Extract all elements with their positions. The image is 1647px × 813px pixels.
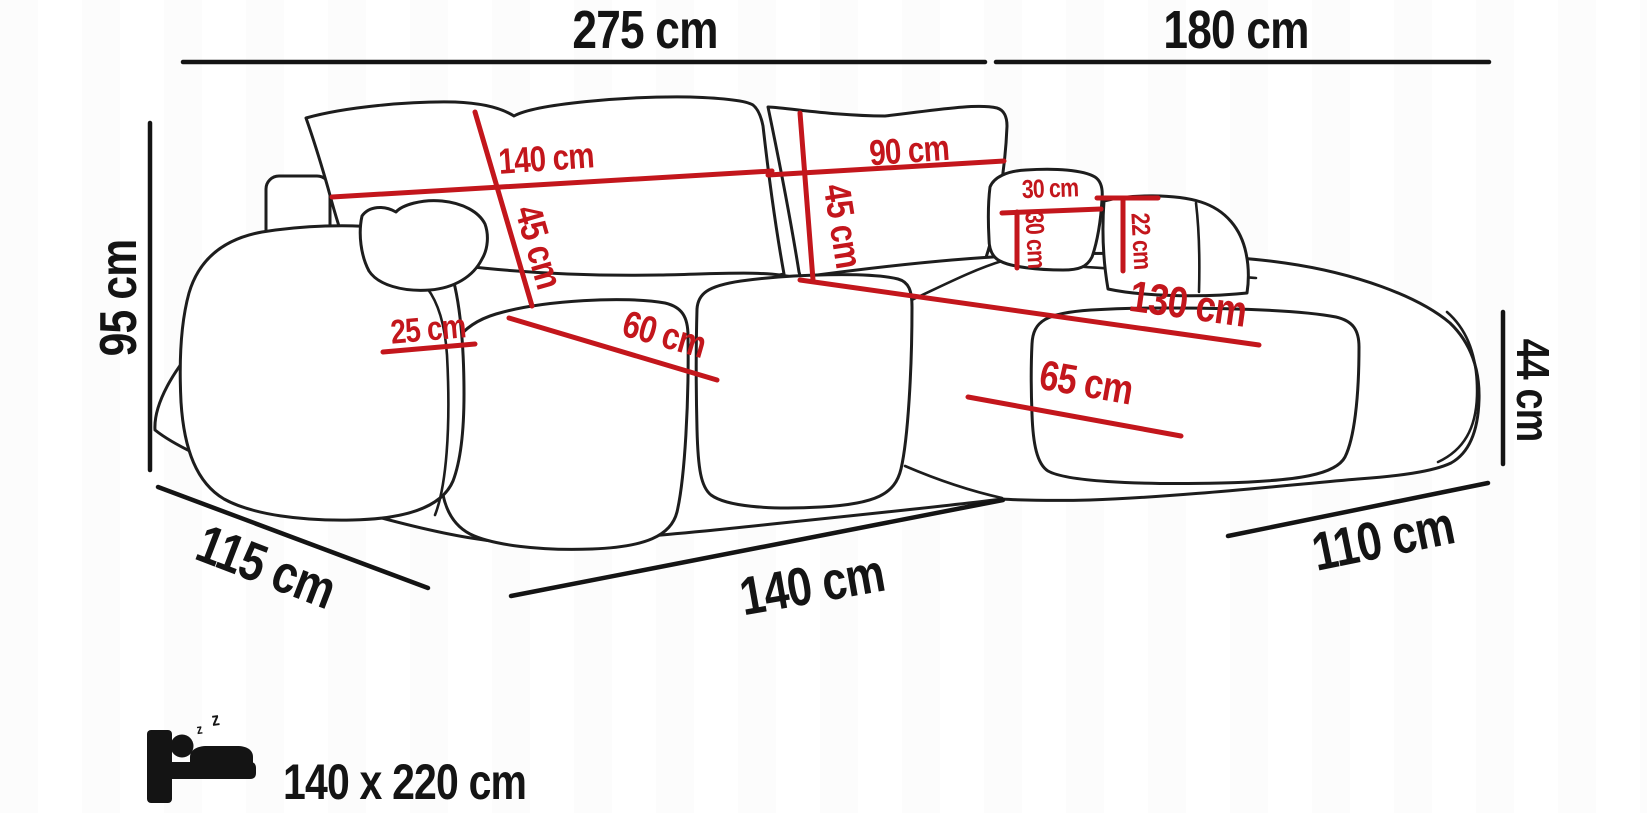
sofa-drawing (155, 97, 1479, 549)
dim-label-chaise-front-width: 110 cm (1307, 495, 1459, 582)
sleep-z-large: z (210, 708, 221, 731)
dim-label-armrest-left-width: 25 cm (389, 307, 467, 352)
seat-cushion-middle (696, 275, 912, 508)
dim-label-back-cushion-left-width: 140 cm (497, 134, 595, 181)
bed-headboard (147, 730, 172, 803)
dim-label-back-cushion-right-width: 90 cm (868, 127, 950, 173)
dim-label-seat-height: 44 cm (1507, 339, 1558, 442)
dim-label-armrest-right-height: 22 cm (1125, 212, 1157, 270)
dim-label-front-width: 140 cm (735, 543, 888, 627)
dim-label-overall-width: 275 cm (572, 0, 717, 60)
dim-label-pillow-width: 30 cm (1021, 173, 1078, 204)
sleep-z-small: z (195, 720, 203, 737)
dim-label-pillow-height: 30 cm (1019, 211, 1051, 269)
sofa-dimension-diagram: 140 cm 45 cm 90 cm 45 cm 30 cm 30 cm 22 … (0, 0, 1647, 813)
pillow-left (360, 201, 487, 291)
dim-label-overall-height: 95 cm (90, 240, 148, 357)
blanket (190, 746, 253, 764)
dim-label-chaise-overall-depth: 180 cm (1163, 0, 1308, 60)
sleeping-size-label: 140 x 220 cm (283, 754, 526, 810)
sleeper-head (171, 735, 194, 758)
sleeping-function: z z 140 x 220 cm (147, 708, 526, 810)
bed-icon: z z (147, 708, 256, 803)
mattress (172, 762, 256, 779)
